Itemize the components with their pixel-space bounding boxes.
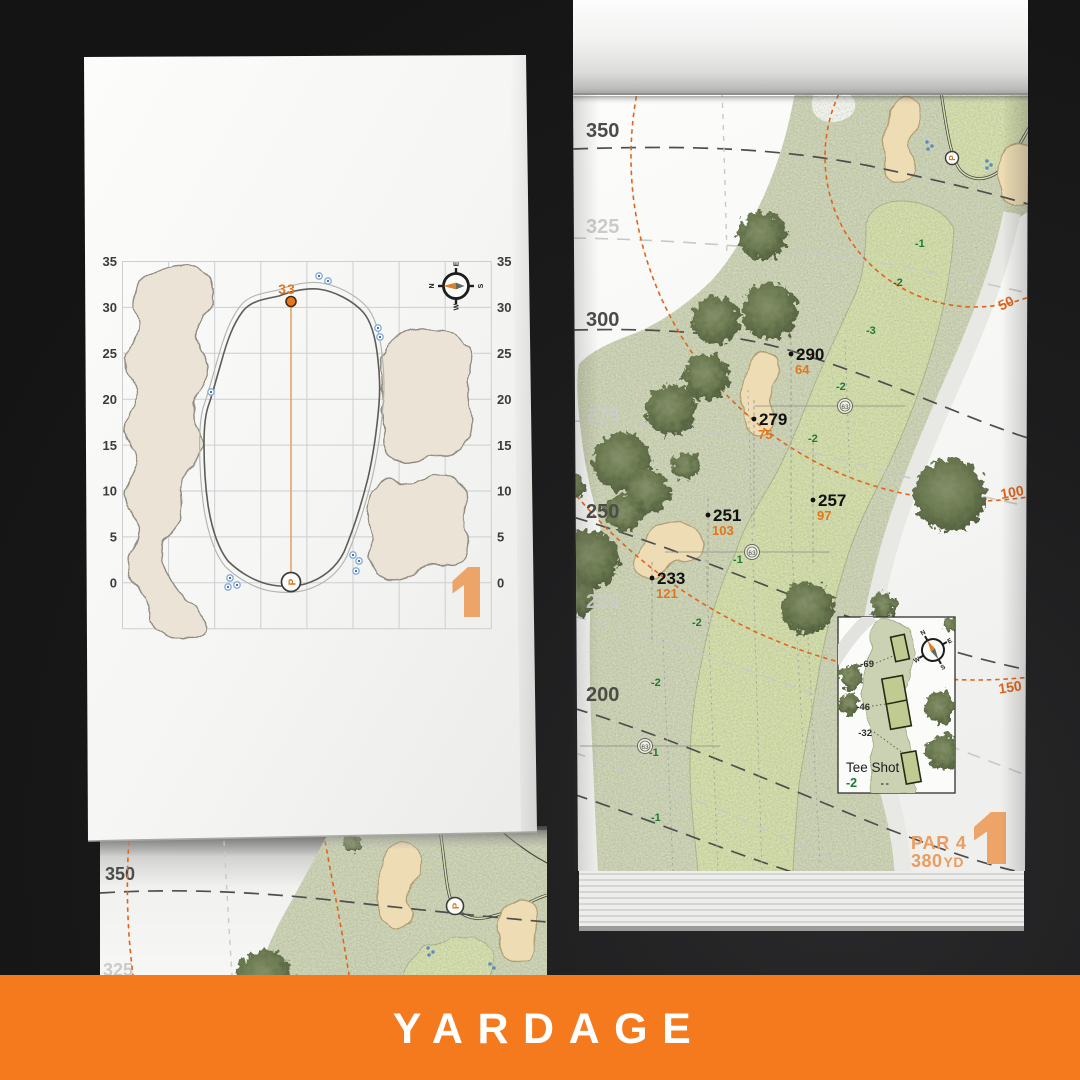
svg-text:25: 25 xyxy=(103,346,117,361)
svg-text:63: 63 xyxy=(748,550,756,557)
svg-text:64: 64 xyxy=(795,362,810,377)
svg-text:20: 20 xyxy=(497,392,511,407)
svg-text:10: 10 xyxy=(497,484,511,499)
svg-text:35: 35 xyxy=(103,254,117,269)
svg-text:30: 30 xyxy=(497,300,511,315)
svg-text:350: 350 xyxy=(105,864,135,884)
svg-text:P: P xyxy=(948,155,957,161)
svg-text:97: 97 xyxy=(817,508,831,523)
svg-text:E: E xyxy=(454,261,461,266)
svg-text:103: 103 xyxy=(712,523,734,538)
svg-text:10: 10 xyxy=(103,484,117,499)
svg-text:33: 33 xyxy=(278,281,296,297)
svg-text:-2: -2 xyxy=(692,617,702,629)
svg-text:-2: -2 xyxy=(651,677,661,689)
svg-text:35: 35 xyxy=(497,254,511,269)
svg-text:121: 121 xyxy=(656,586,678,601)
svg-text:-1: -1 xyxy=(733,554,743,566)
svg-text:-69: -69 xyxy=(860,659,874,670)
svg-text:63: 63 xyxy=(641,744,649,751)
svg-text:-1: -1 xyxy=(649,747,659,759)
svg-text:30: 30 xyxy=(103,300,117,315)
svg-text:15: 15 xyxy=(497,438,511,453)
svg-text:-1: -1 xyxy=(651,812,661,824)
svg-text:P: P xyxy=(288,578,299,585)
svg-text:PAR 4: PAR 4 xyxy=(911,833,967,853)
svg-text:S: S xyxy=(478,283,485,288)
svg-text:0: 0 xyxy=(497,575,504,590)
svg-text:5: 5 xyxy=(110,529,117,544)
svg-text:-3: -3 xyxy=(866,325,876,337)
svg-text:25: 25 xyxy=(497,346,511,361)
svg-text:-46: -46 xyxy=(856,702,870,713)
svg-text:0: 0 xyxy=(110,575,117,590)
svg-text:-2: -2 xyxy=(893,277,903,289)
svg-text:-1: -1 xyxy=(915,238,925,250)
svg-text:380YD: 380YD xyxy=(911,851,964,871)
svg-text:15: 15 xyxy=(103,438,117,453)
svg-text:P: P xyxy=(451,902,462,909)
svg-text:5: 5 xyxy=(497,529,504,544)
svg-text:75: 75 xyxy=(758,427,772,442)
svg-text:W: W xyxy=(454,303,461,310)
svg-text:20: 20 xyxy=(103,392,117,407)
svg-text:YARDAGE: YARDAGE xyxy=(393,1005,706,1053)
svg-text:-2: -2 xyxy=(808,433,818,445)
svg-text:N: N xyxy=(429,283,436,288)
svg-text:-32: -32 xyxy=(858,728,872,739)
svg-text:63: 63 xyxy=(841,404,849,411)
svg-text:-2: -2 xyxy=(846,776,857,790)
svg-text:-2: -2 xyxy=(836,381,846,393)
svg-text:Tee Shot: Tee Shot xyxy=(846,760,900,775)
